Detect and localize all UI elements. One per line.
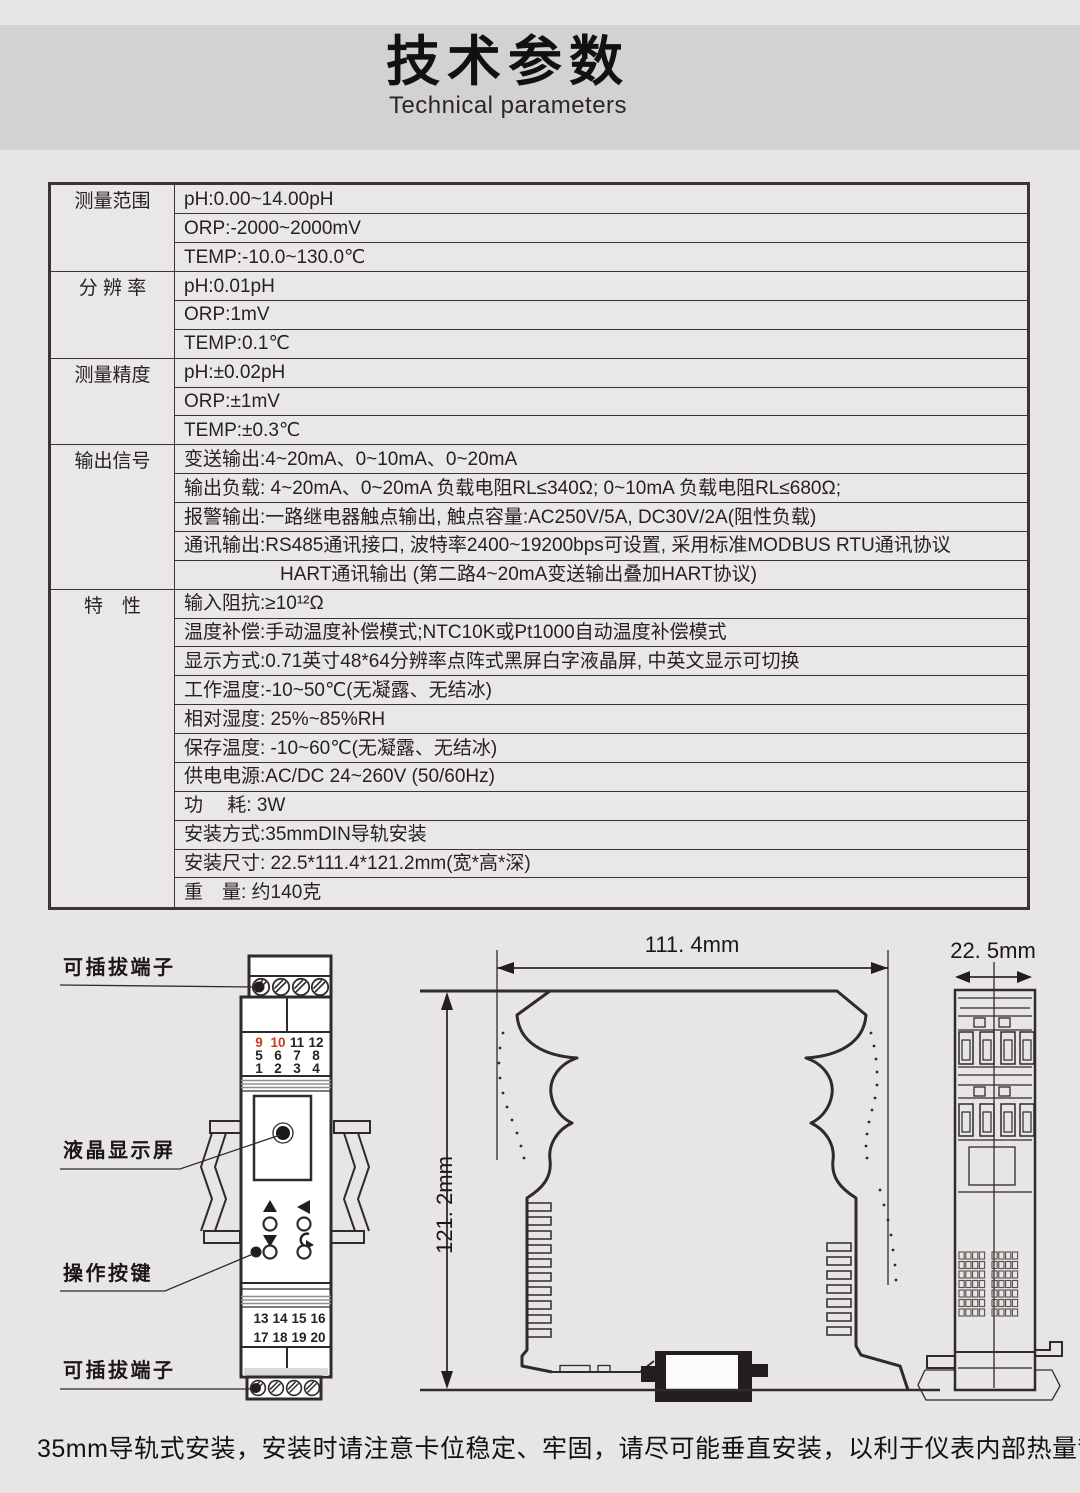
spec-value: 通讯输出:RS485通讯接口, 波特率2400~19200bps可设置, 采用标…	[175, 531, 1029, 560]
lcd-display	[254, 1096, 311, 1180]
spec-value: ORP:-2000~2000mV	[175, 214, 1029, 243]
spec-value: 重 量: 约140克	[175, 878, 1029, 909]
spec-value: 输出负载: 4~20mA、0~20mA 负载电阻RL≤340Ω; 0~10mA …	[175, 474, 1029, 503]
spec-row: 输出负载: 4~20mA、0~20mA 负载电阻RL≤340Ω; 0~10mA …	[50, 474, 1029, 503]
spec-row: TEMP:-10.0~130.0℃	[50, 243, 1029, 272]
callout-buttons: 操作按键	[63, 1261, 153, 1285]
page-title: 技术参数	[0, 25, 1048, 92]
spec-row: 通讯输出:RS485通讯接口, 波特率2400~19200bps可设置, 采用标…	[50, 531, 1029, 560]
leader-dot	[251, 1383, 261, 1393]
spec-group-label: 输出信号	[50, 445, 175, 589]
din-rail-clip	[552, 1351, 768, 1402]
terminal-number: 18	[272, 1330, 288, 1345]
spec-value: pH:±0.02pH	[175, 358, 1029, 387]
up-button[interactable]	[264, 1218, 277, 1231]
terminal-number: 16	[310, 1311, 326, 1326]
terminal-number: 20	[310, 1330, 325, 1345]
spec-row: 安装尺寸: 22.5*111.4*121.2mm(宽*高*深)	[50, 849, 1029, 878]
spec-table: 测量范围pH:0.00~14.00pHORP:-2000~2000mVTEMP:…	[48, 182, 1030, 910]
page: { "page": { "title_zh": "技术参数", "title_e…	[0, 0, 1080, 1493]
spec-value: 报警输出:一路继电器触点输出, 触点容量:AC250V/5A, DC30V/2A…	[175, 503, 1029, 532]
leader-dot	[251, 1247, 262, 1258]
page-subtitle: Technical parameters	[0, 92, 1048, 120]
spec-group-label: 特 性	[50, 589, 175, 908]
dimension-depth: 22. 5mm	[950, 938, 1036, 963]
spec-value: pH:0.01pH	[175, 272, 1029, 301]
spec-row: 工作温度:-10~50℃(无凝露、无结冰)	[50, 676, 1029, 705]
spec-row: 测量精度pH:±0.02pH	[50, 358, 1029, 387]
spec-row: ORP:-2000~2000mV	[50, 214, 1029, 243]
terminal-number: 1	[255, 1061, 263, 1076]
spec-value: pH:0.00~14.00pH	[175, 184, 1029, 214]
terminal-number: 19	[291, 1330, 306, 1345]
terminal-block-top	[249, 956, 331, 997]
spec-value: 变送输出:4~20mA、0~10mA、0~20mA	[175, 445, 1029, 474]
spec-value: 工作温度:-10~50℃(无凝露、无结冰)	[175, 676, 1029, 705]
terminal-number: 17	[253, 1330, 268, 1345]
spec-value: 安装方式:35mmDIN导轨安装	[175, 820, 1029, 849]
spec-row: ORP:±1mV	[50, 387, 1029, 416]
dimension-height: 121. 2mm	[432, 1156, 457, 1254]
spec-row: ORP:1mV	[50, 300, 1029, 329]
spec-row: 重 量: 约140克	[50, 878, 1029, 909]
down-button[interactable]	[264, 1246, 277, 1259]
title-band: 技术参数 Technical parameters	[0, 25, 1080, 150]
spec-row: 报警输出:一路继电器触点输出, 触点容量:AC250V/5A, DC30V/2A…	[50, 503, 1029, 532]
spec-row: 显示方式:0.71英寸48*64分辨率点阵式黑屏白字液晶屏, 中英文显示可切换	[50, 647, 1029, 676]
spec-value: HART通讯输出 (第二路4~20mA变送输出叠加HART协议)	[175, 560, 1029, 589]
spec-group-label: 分 辨 率	[50, 272, 175, 359]
front-view: 910111256781234	[60, 955, 370, 1399]
spec-value: 安装尺寸: 22.5*111.4*121.2mm(宽*高*深)	[175, 849, 1029, 878]
terminal-block-bottom	[247, 1377, 321, 1399]
spec-row: 温度补偿:手动温度补偿模式;NTC10K或Pt1000自动温度补偿模式	[50, 618, 1029, 647]
spec-row: HART通讯输出 (第二路4~20mA变送输出叠加HART协议)	[50, 560, 1029, 589]
spec-row: 特 性输入阻抗:≥10¹²Ω	[50, 589, 1029, 618]
vent-slots	[527, 1203, 851, 1337]
vent-hole-grid	[959, 1252, 1018, 1316]
dimension-diagram: 910111256781234	[0, 920, 1080, 1420]
spec-row: 分 辨 率pH:0.01pH	[50, 272, 1029, 301]
terminal-number: 2	[274, 1061, 282, 1076]
terminal-number: 14	[272, 1311, 288, 1326]
spec-group-label: 测量范围	[50, 184, 175, 272]
dimension-width: 111. 4mm	[645, 932, 740, 957]
din-rail-end	[918, 1342, 1062, 1400]
spec-row: TEMP:±0.3℃	[50, 416, 1029, 445]
spec-value: 相对湿度: 25%~85%RH	[175, 705, 1029, 734]
spec-value: TEMP:-10.0~130.0℃	[175, 243, 1029, 272]
callout-terminal-top: 可插拔端子	[63, 955, 176, 979]
spec-row: 供电电源:AC/DC 24~260V (50/60Hz)	[50, 762, 1029, 791]
terminal-number: 4	[312, 1061, 320, 1076]
spec-value: 显示方式:0.71英寸48*64分辨率点阵式黑屏白字液晶屏, 中英文显示可切换	[175, 647, 1029, 676]
left-button[interactable]	[298, 1218, 311, 1231]
spec-row: 输出信号变送输出:4~20mA、0~10mA、0~20mA	[50, 445, 1029, 474]
spec-value: 输入阻抗:≥10¹²Ω	[175, 589, 1029, 618]
spec-row: 功 耗: 3W	[50, 791, 1029, 820]
terminal-number: 13	[253, 1311, 269, 1326]
callout-lcd: 液晶显示屏	[63, 1138, 176, 1162]
end-view: 22. 5mm	[918, 938, 1062, 1400]
spec-row: 保存温度: -10~60℃(无凝露、无结冰)	[50, 734, 1029, 763]
spec-group-label: 测量精度	[50, 358, 175, 445]
spec-value: TEMP:±0.3℃	[175, 416, 1029, 445]
spec-row: 安装方式:35mmDIN导轨安装	[50, 820, 1029, 849]
spec-value: 供电电源:AC/DC 24~260V (50/60Hz)	[175, 762, 1029, 791]
spec-row: TEMP:0.1℃	[50, 329, 1029, 358]
terminal-number: 3	[293, 1061, 301, 1076]
leader-dot	[254, 982, 265, 993]
terminal-number: 15	[291, 1311, 307, 1326]
spec-value: ORP:±1mV	[175, 387, 1029, 416]
mounting-note: 35mm导轨式安装，安装时请注意卡位稳定、牢固，请尽可能垂直安装，以利于仪表内部…	[37, 1429, 1057, 1465]
spec-value: TEMP:0.1℃	[175, 329, 1029, 358]
spec-value: ORP:1mV	[175, 300, 1029, 329]
enter-button[interactable]	[298, 1246, 311, 1259]
callout-terminal-bottom: 可插拔端子	[63, 1358, 176, 1382]
side-view: 111. 4mm 121. 2mm	[420, 932, 940, 1402]
spec-row: 相对湿度: 25%~85%RH	[50, 705, 1029, 734]
spec-value: 温度补偿:手动温度补偿模式;NTC10K或Pt1000自动温度补偿模式	[175, 618, 1029, 647]
spec-row: 测量范围pH:0.00~14.00pH	[50, 184, 1029, 214]
spec-value: 功 耗: 3W	[175, 791, 1029, 820]
leader-dot	[276, 1126, 290, 1140]
spec-value: 保存温度: -10~60℃(无凝露、无结冰)	[175, 734, 1029, 763]
